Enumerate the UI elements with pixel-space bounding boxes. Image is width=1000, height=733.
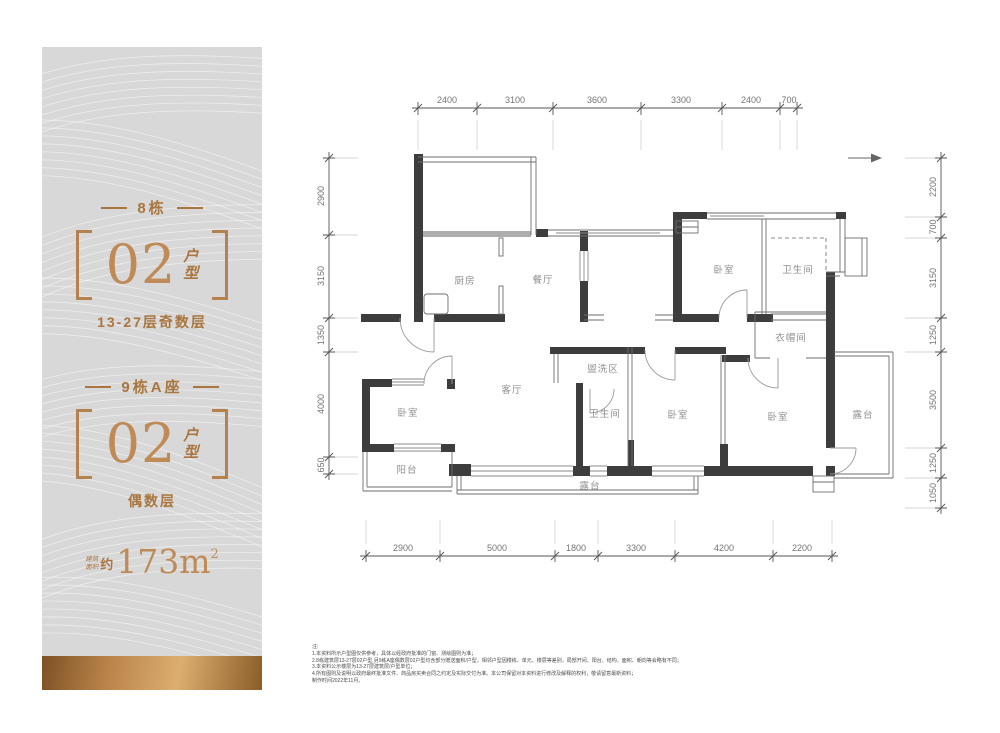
dim-label: 3100	[505, 95, 525, 105]
floor-plan: 2400 3100 3600 3300 2400 700 2900 5000 1…	[0, 0, 1000, 733]
room-label-living: 客厅	[501, 384, 522, 396]
room-label-bath-mid: 卫生间	[589, 408, 621, 420]
dim-label: 3300	[671, 95, 691, 105]
note-line: 1.本资料所示户型图仅供参考，具体以经政府批准的门窗、测绘图则为准；	[312, 651, 994, 658]
walls-thin	[363, 157, 893, 494]
north-arrow-icon	[848, 154, 882, 163]
room-label-closet: 衣帽间	[775, 332, 807, 344]
flyer-page: 8栋 02 户 型 13-27层奇数层 9栋A座 02	[0, 0, 1000, 733]
dim-label: 4200	[714, 543, 734, 553]
dim-label: 700	[781, 95, 796, 105]
dim-label: 1800	[566, 543, 586, 553]
room-label-wash-area: 盥洗区	[587, 363, 619, 375]
dim-label: 700	[928, 219, 938, 234]
room-label-bath-ne: 卫生间	[782, 264, 814, 276]
room-label-kitchen: 厨房	[454, 275, 475, 287]
room-label-terrace-south: 露台	[579, 480, 600, 492]
room-label-bedroom-master: 卧室	[767, 411, 788, 423]
dim-label: 3500	[928, 390, 938, 410]
dim-label: 2900	[393, 543, 413, 553]
dim-labels: 2400 3100 3600 3300 2400 700 2900 5000 1…	[316, 95, 938, 553]
dim-label: 3150	[928, 268, 938, 288]
dim-label: 1250	[928, 453, 938, 473]
room-label-balcony: 阳台	[396, 464, 417, 476]
dim-label: 1350	[316, 325, 326, 345]
dim-label: 3300	[626, 543, 646, 553]
dim-label: 1250	[928, 325, 938, 345]
dim-label: 2200	[792, 543, 812, 553]
note-line: 4.所有图则及说明以政府最终批准文件、商品房买卖合同之约定及实际交付为准。本公司…	[312, 671, 994, 678]
dim-label: 3150	[316, 266, 326, 286]
dim-label: 1050	[928, 483, 938, 503]
room-label-bedroom-west: 卧室	[397, 407, 418, 419]
room-label-bedroom-ne: 卧室	[713, 264, 734, 276]
dim-label: 5000	[487, 543, 507, 553]
dim-label: 2400	[741, 95, 761, 105]
note-line: 注:	[312, 644, 994, 651]
note-line: 制作时间2022年11月。	[312, 678, 994, 685]
room-labels: 厨房 餐厅 卧室 卫生间 衣帽间 客厅 盥洗区 卫生间 卧室 卧室 卧室 露台 …	[396, 264, 873, 492]
dim-label: 2400	[437, 95, 457, 105]
notes-block: 注: 1.本资料所示户型图仅供参考，具体以经政府批准的门窗、测绘图则为准； 2.…	[312, 644, 994, 685]
low-wall	[423, 231, 531, 237]
room-label-dining: 餐厅	[532, 274, 553, 286]
room-label-terrace-east: 露台	[852, 409, 873, 421]
dim-label: 650	[316, 457, 326, 472]
dim-label: 3600	[587, 95, 607, 105]
dim-label: 2200	[928, 177, 938, 197]
dim-label: 2900	[316, 186, 326, 206]
extension-lines	[335, 120, 935, 544]
dim-label: 4000	[316, 394, 326, 414]
room-label-bedroom-mid: 卧室	[667, 409, 688, 421]
